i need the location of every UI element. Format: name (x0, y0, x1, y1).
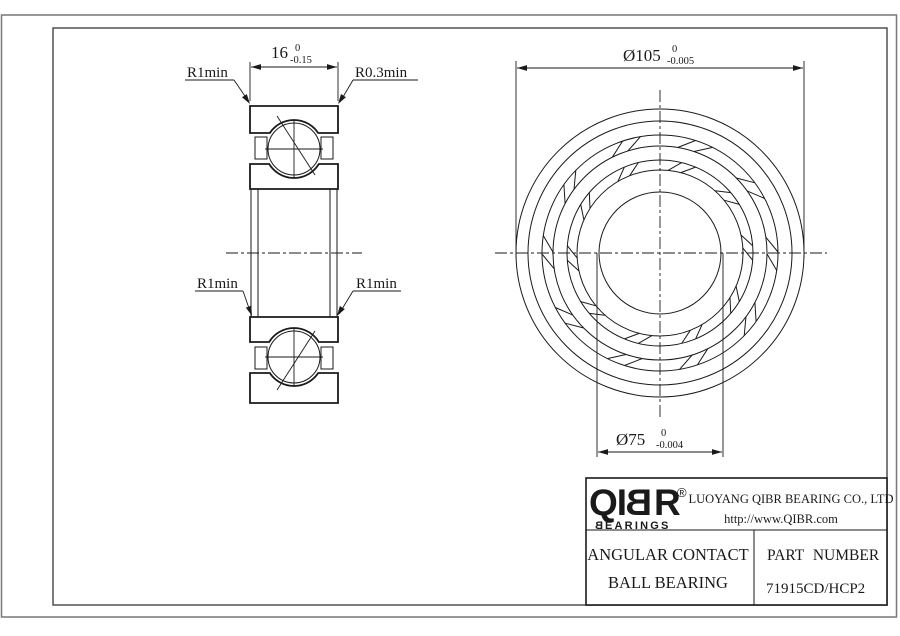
cage-pocket-divider (668, 163, 682, 171)
dimension-arrowhead (338, 94, 346, 104)
od-dim-tol-upper: 0 (672, 44, 677, 55)
cage-bottom-right (321, 347, 333, 369)
cage-pocket-divider (542, 254, 554, 269)
width-dim-value: 16 (271, 43, 288, 62)
cage-pocket-divider (567, 246, 577, 258)
cage-pocket-divider (730, 298, 731, 314)
bore-dim-tol-upper: 0 (661, 428, 666, 439)
cage-pocket-divider (681, 167, 696, 173)
dimension-arrowhead (246, 306, 252, 316)
dimension-arrowhead (251, 64, 261, 70)
width-dim-tol-lower: -0.15 (290, 55, 312, 66)
dimension-arrowhead (517, 65, 527, 71)
cage-pocket-divider (736, 286, 739, 302)
dimension-arrowhead (712, 449, 722, 455)
cage-pocket-divider (625, 359, 643, 366)
engineering-drawing-page: 16 0 -0.15 R1min R0.3min R1min R1min Ø10… (0, 0, 900, 636)
cage-pocket-divider (581, 204, 584, 220)
arrowheads (242, 64, 803, 455)
section-view (226, 106, 362, 403)
od-dim-tol-lower: -0.005 (667, 56, 694, 67)
title-block: QI B R ® B EARINGS LUOYANG QIBR BEARING … (586, 478, 894, 605)
company-name: LUOYANG QIBR BEARING CO., LTD (688, 492, 893, 506)
cage-pocket-divider (678, 141, 696, 148)
cage-pocket-divider (543, 236, 553, 253)
logo-text-mirrored-b: B (625, 482, 652, 523)
cage-pocket-divider (607, 355, 626, 359)
product-type-line1: ANGULAR CONTACT (587, 545, 748, 564)
dimension-arrowhead (327, 64, 337, 70)
od-dim-value: Ø105 (623, 46, 661, 65)
cage-pocket-divider (767, 254, 777, 271)
radius-label-mid-right: R1min (356, 276, 397, 292)
bearing-drawing-canvas: 16 0 -0.15 R1min R0.3min R1min R1min Ø10… (0, 0, 900, 636)
part-number-value: 71915CD/HCP2 (766, 581, 865, 597)
cage-top-right (321, 137, 333, 159)
dimension-arrowhead (242, 94, 250, 104)
bore-dim-value: Ø75 (616, 430, 645, 449)
width-dim-tol-upper: 0 (295, 43, 300, 54)
product-type-line2: BALL BEARING (608, 573, 728, 592)
cage-pocket-divider (638, 336, 652, 344)
dimension-arrowhead (337, 306, 345, 316)
cage-top-left (255, 137, 267, 159)
dimension-arrowhead (598, 449, 608, 455)
cage-pocket-divider (564, 185, 565, 204)
cage-pocket-divider (755, 302, 756, 321)
cage-pocket-divider (694, 147, 713, 151)
cage-pocket-divider (589, 193, 590, 209)
logo-sub-mirrored-b: B (595, 520, 603, 532)
part-number-label: PART NUMBER (767, 547, 880, 564)
bore-dim-tol-lower: -0.004 (656, 440, 684, 451)
cage-bottom-left (255, 347, 267, 369)
radius-label-mid-left: R1min (197, 276, 238, 292)
cage-pocket-divider (624, 333, 639, 339)
dimension-arrowhead (793, 65, 803, 71)
cage-pocket-divider (766, 237, 778, 252)
radius-label-top-left: R1min (187, 65, 228, 81)
logo-subtext: EARINGS (605, 520, 671, 532)
cage-pocket-divider (743, 248, 753, 260)
logo-text-qi: QI (589, 482, 626, 523)
registered-trademark-icon: ® (677, 485, 687, 500)
radius-label-top-right: R0.3min (355, 65, 408, 81)
front-view (495, 90, 827, 420)
company-website: http://www.QIBR.com (724, 512, 838, 526)
